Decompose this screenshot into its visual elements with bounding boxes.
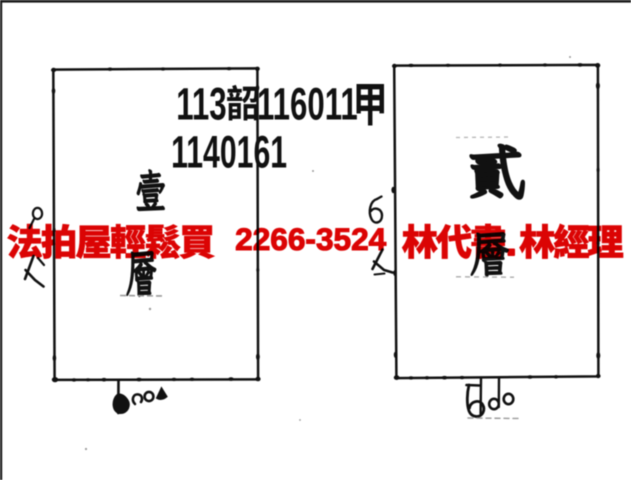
svg-text:113: 113: [176, 79, 226, 130]
svg-text:2266-3524: 2266-3524: [235, 221, 386, 257]
svg-text:1140161: 1140161: [171, 126, 287, 177]
svg-text:116011: 116011: [257, 79, 358, 130]
